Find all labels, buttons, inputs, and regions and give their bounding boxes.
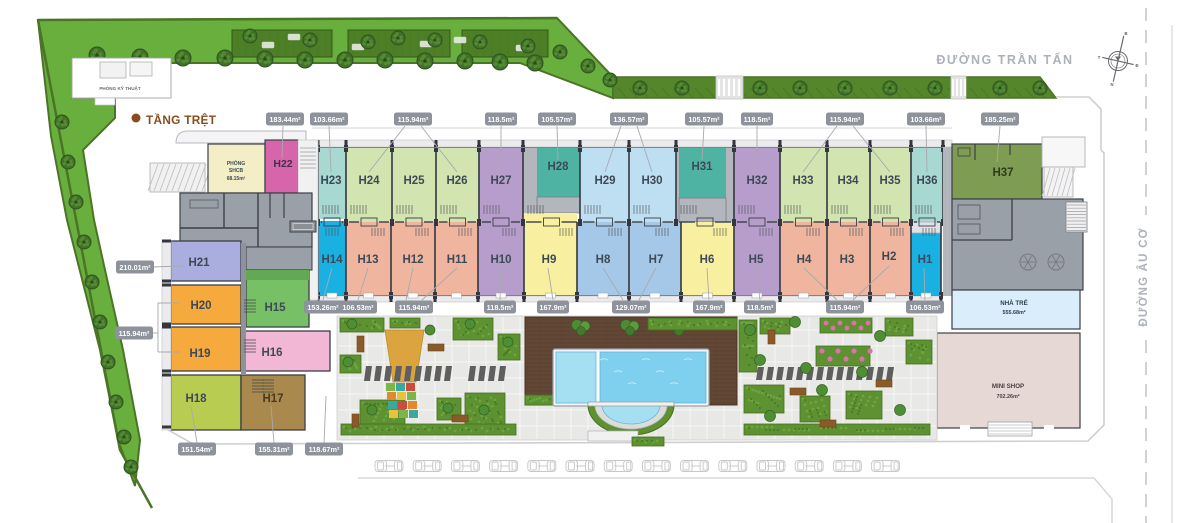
svg-text:H9: H9 <box>542 254 557 266</box>
svg-text:115.94m²: 115.94m² <box>830 303 861 312</box>
svg-text:105.57m²: 105.57m² <box>688 115 720 124</box>
svg-text:103.66m²: 103.66m² <box>910 115 942 124</box>
svg-text:183.44m²: 183.44m² <box>269 115 301 124</box>
svg-text:151.54m²: 151.54m² <box>181 445 213 454</box>
svg-text:118.67m²: 118.67m² <box>309 445 340 454</box>
svg-text:106.53m²: 106.53m² <box>909 303 941 312</box>
svg-text:H27: H27 <box>490 175 511 187</box>
svg-text:PHÒNG: PHÒNG <box>227 159 245 167</box>
svg-text:555.68m²: 555.68m² <box>1002 310 1025 316</box>
svg-text:ĐƯỜNG TRẦN TẤN: ĐƯỜNG TRẦN TẤN <box>936 52 1073 67</box>
svg-text:NHÀ TRẺ: NHÀ TRẺ <box>1000 300 1028 307</box>
svg-text:155.31m²: 155.31m² <box>258 445 290 454</box>
svg-text:103.66m²: 103.66m² <box>313 115 345 124</box>
svg-text:167.9m²: 167.9m² <box>695 303 723 312</box>
svg-text:H21: H21 <box>188 257 210 269</box>
svg-text:115.94m²: 115.94m² <box>399 303 430 312</box>
svg-text:H19: H19 <box>189 348 210 360</box>
svg-text:H18: H18 <box>185 393 207 405</box>
svg-text:167.9m²: 167.9m² <box>539 303 567 312</box>
svg-text:H7: H7 <box>649 254 664 266</box>
svg-text:H12: H12 <box>402 254 423 266</box>
svg-text:105.57m²: 105.57m² <box>541 115 573 124</box>
svg-text:153.26m²: 153.26m² <box>307 303 339 312</box>
svg-text:118.5m²: 118.5m² <box>744 115 771 124</box>
svg-text:115.94m²: 115.94m² <box>830 115 861 124</box>
svg-text:H28: H28 <box>547 161 569 173</box>
svg-text:H33: H33 <box>792 175 813 187</box>
svg-text:H4: H4 <box>797 254 812 266</box>
svg-text:T: T <box>1098 55 1101 60</box>
svg-text:H5: H5 <box>749 254 764 266</box>
svg-text:118.5m²: 118.5m² <box>747 303 774 312</box>
svg-text:H2: H2 <box>882 251 897 263</box>
svg-text:702.26m²: 702.26m² <box>996 394 1019 400</box>
svg-text:H1: H1 <box>918 254 933 266</box>
svg-text:H16: H16 <box>261 347 282 359</box>
svg-text:H11: H11 <box>447 254 468 266</box>
svg-text:H20: H20 <box>190 300 211 312</box>
svg-text:H37: H37 <box>992 167 1013 179</box>
svg-text:Đ: Đ <box>1135 63 1138 68</box>
svg-text:H22: H22 <box>273 158 292 170</box>
svg-text:106.53m²: 106.53m² <box>342 303 374 312</box>
svg-text:H6: H6 <box>700 254 715 266</box>
svg-text:115.94m²: 115.94m² <box>398 115 429 124</box>
svg-text:68.15m²: 68.15m² <box>227 176 246 182</box>
svg-text:TẦNG TRỆT: TẦNG TRỆT <box>146 113 217 127</box>
svg-text:H25: H25 <box>403 175 425 187</box>
svg-text:210.01m²: 210.01m² <box>119 263 151 272</box>
svg-text:118.5m²: 118.5m² <box>488 115 515 124</box>
svg-text:H32: H32 <box>746 175 767 187</box>
svg-text:136.57m²: 136.57m² <box>613 115 645 124</box>
svg-text:H34: H34 <box>837 175 859 187</box>
svg-text:MINI SHOP: MINI SHOP <box>992 383 1024 390</box>
svg-text:B: B <box>1124 31 1127 36</box>
svg-text:H29: H29 <box>594 175 615 187</box>
svg-text:H15: H15 <box>264 302 286 314</box>
svg-text:118.5m²: 118.5m² <box>487 303 514 312</box>
svg-text:ĐƯỜNG ÂU CƠ: ĐƯỜNG ÂU CƠ <box>1137 227 1150 326</box>
svg-text:H35: H35 <box>879 175 901 187</box>
svg-text:129.07m²: 129.07m² <box>615 303 647 312</box>
svg-text:N: N <box>1110 82 1113 87</box>
svg-text:185.25m²: 185.25m² <box>984 115 1016 124</box>
svg-text:H26: H26 <box>446 175 467 187</box>
svg-text:SHCB: SHCB <box>229 168 244 174</box>
svg-text:H3: H3 <box>840 254 855 266</box>
svg-text:H23: H23 <box>320 175 341 187</box>
svg-text:H24: H24 <box>358 175 380 187</box>
svg-text:H30: H30 <box>641 175 662 187</box>
svg-text:H10: H10 <box>490 254 511 266</box>
svg-text:H8: H8 <box>596 254 611 266</box>
svg-text:PHÒNG KỸ THUẬT: PHÒNG KỸ THUẬT <box>99 84 141 91</box>
svg-text:H36: H36 <box>916 175 937 187</box>
svg-text:H13: H13 <box>357 254 378 266</box>
svg-text:H17: H17 <box>262 393 283 405</box>
svg-text:115.94m²: 115.94m² <box>119 329 150 338</box>
svg-text:H14: H14 <box>321 254 343 266</box>
svg-text:H31: H31 <box>691 161 713 173</box>
